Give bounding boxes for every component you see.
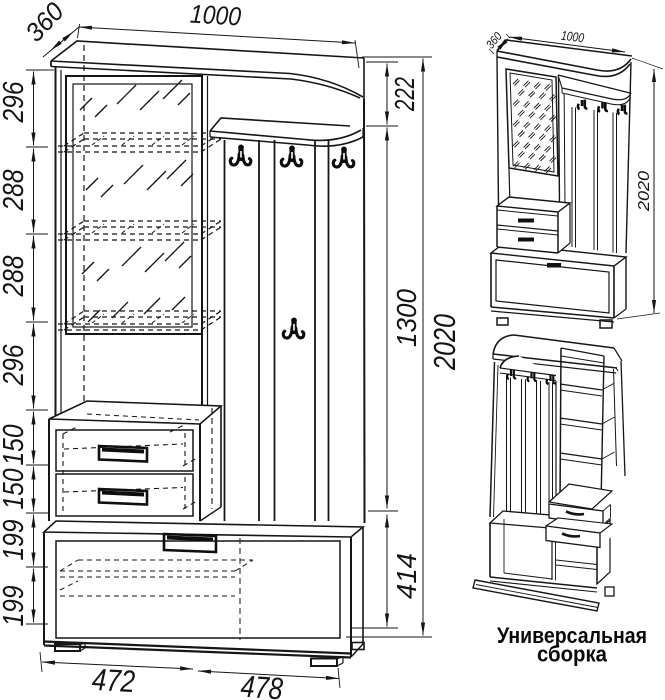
svg-text:288: 288	[0, 170, 30, 212]
svg-text:сборка: сборка	[537, 642, 608, 667]
svg-text:222: 222	[389, 77, 420, 112]
svg-text:288: 288	[0, 256, 30, 298]
svg-text:150: 150	[0, 469, 30, 510]
svg-text:199: 199	[0, 586, 30, 627]
svg-text:2020: 2020	[636, 171, 653, 212]
svg-text:1000: 1000	[560, 28, 585, 46]
svg-text:296: 296	[0, 344, 30, 387]
svg-text:1000: 1000	[189, 0, 242, 31]
svg-text:199: 199	[0, 520, 30, 561]
svg-text:414: 414	[391, 553, 422, 599]
svg-text:150: 150	[0, 425, 30, 466]
svg-text:472: 472	[91, 662, 136, 699]
svg-text:478: 478	[240, 669, 285, 700]
svg-text:296: 296	[0, 81, 30, 124]
svg-text:2020: 2020	[427, 314, 462, 371]
svg-text:1300: 1300	[391, 289, 422, 347]
